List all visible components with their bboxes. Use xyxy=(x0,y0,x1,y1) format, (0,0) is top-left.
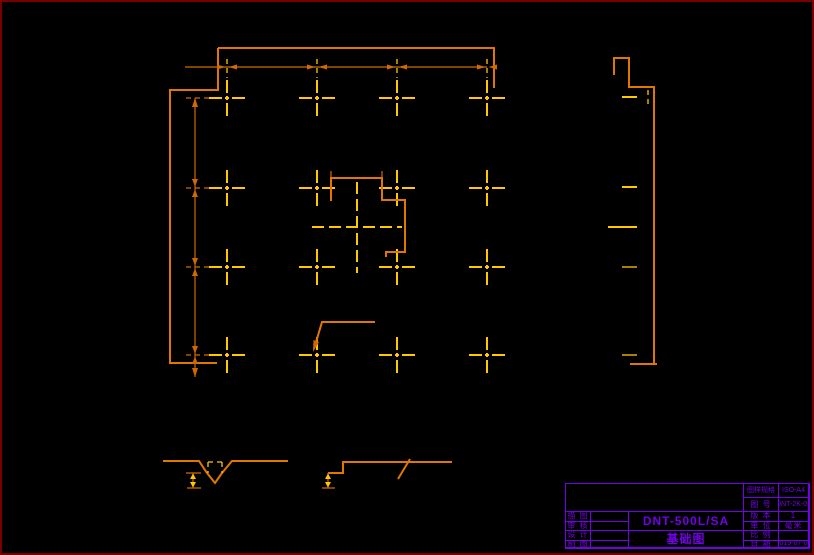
title-block: 图样规格 ISO-A4 图 号 DNT-2K-01 描 图 审 核 设 计 制 … xyxy=(565,483,810,549)
titleblock-blank-cell xyxy=(566,484,744,512)
section1-dim-arrow xyxy=(190,474,196,480)
anchor-bolt-cross xyxy=(299,80,335,116)
pit-outline xyxy=(331,178,405,257)
dimension-arrow xyxy=(307,65,316,70)
section2-dim-arrow xyxy=(325,474,331,480)
anchor-bolt-cross xyxy=(209,249,245,285)
plan-outline-left xyxy=(170,48,218,363)
version-label: 版 本 xyxy=(744,512,779,522)
leader-line xyxy=(313,322,375,352)
right-edge-center-dashes xyxy=(608,97,637,355)
plan-outline xyxy=(170,48,494,363)
drawing-no-label: 图 号 xyxy=(744,498,779,512)
anchor-bolt-cross xyxy=(469,249,505,285)
drawing-title: 基础图 xyxy=(629,531,744,548)
dimension-arrow xyxy=(192,269,198,277)
sign-label: 制 图 xyxy=(566,541,591,549)
anchor-bolt-cross xyxy=(209,170,245,206)
dimension-arrow xyxy=(399,65,408,70)
pit-end-ticks xyxy=(331,171,382,177)
sign-field xyxy=(591,531,629,541)
paper-size-value: ISO-A4 xyxy=(779,484,809,498)
unit-label: 单 位 xyxy=(744,522,779,532)
dimension-arrow xyxy=(387,65,396,70)
center-pit-outline xyxy=(331,171,405,257)
dimension-arrow xyxy=(229,65,238,70)
scale-label: 比 例 xyxy=(744,531,779,541)
plan-outline-top xyxy=(218,48,494,88)
sign-label: 描 图 xyxy=(566,512,591,522)
dimension-arrow xyxy=(192,357,198,365)
anchor-bolt-cross xyxy=(469,337,505,373)
dimension-arrow xyxy=(192,179,198,187)
extension-dashes xyxy=(227,59,487,78)
anchor-bolt-cross xyxy=(209,337,245,373)
section2-ground-line xyxy=(328,462,452,473)
anchor-bolt-cross xyxy=(209,80,245,116)
section1-dim-arrow xyxy=(190,482,196,488)
unit-value: 毫米 xyxy=(779,522,809,532)
detail-section-1 xyxy=(163,461,288,488)
date-value: 2019-07-03 xyxy=(779,541,809,549)
dimension-arrow xyxy=(217,65,226,70)
anchor-bolt-cross xyxy=(379,337,415,373)
sign-field xyxy=(591,541,629,549)
left-dimension-line xyxy=(186,98,210,377)
dimension-arrow xyxy=(489,65,498,70)
sign-label: 审 核 xyxy=(566,522,591,532)
dimension-arrow xyxy=(192,98,198,107)
extension-dashes xyxy=(186,98,210,355)
dimension-arrow xyxy=(192,190,198,198)
dimension-arrow xyxy=(192,346,198,354)
plan-right-edge xyxy=(608,58,657,364)
section1-bolt-pocket-hidden xyxy=(208,462,222,473)
anchor-bolt-cross xyxy=(469,170,505,206)
cad-viewer-screen: 图样规格 ISO-A4 图 号 DNT-2K-01 描 图 审 核 设 计 制 … xyxy=(0,0,814,555)
sign-field xyxy=(591,512,629,522)
drawing-no-value: DNT-2K-01 xyxy=(779,498,809,512)
anchor-bolt-cross xyxy=(299,249,335,285)
version-value: 1 xyxy=(779,512,809,522)
scale-value xyxy=(779,531,809,541)
anchor-bolt-cross xyxy=(299,170,335,206)
paper-size-label: 图样规格 xyxy=(744,484,779,498)
section2-dim-arrow xyxy=(325,482,331,488)
center-mark xyxy=(312,182,402,273)
model-number: DNT-500L/SA xyxy=(629,512,744,531)
dimension-arrow xyxy=(319,65,328,70)
detail-section-2 xyxy=(322,459,452,488)
section1-ground-line xyxy=(163,461,288,483)
date-label: 日 期 xyxy=(744,541,779,549)
top-dimension-line xyxy=(185,59,497,78)
sign-field xyxy=(591,522,629,532)
leader-path xyxy=(314,322,375,349)
sign-label: 设 计 xyxy=(566,531,591,541)
leader-arrow xyxy=(313,340,319,352)
dimension-arrow xyxy=(192,368,198,377)
anchor-bolt-cross xyxy=(379,80,415,116)
cad-canvas[interactable] xyxy=(0,0,814,555)
dimension-arrow xyxy=(477,65,486,70)
dimension-arrow xyxy=(192,258,198,266)
anchor-bolt-cross xyxy=(469,80,505,116)
anchor-bolt-cross xyxy=(379,249,415,285)
